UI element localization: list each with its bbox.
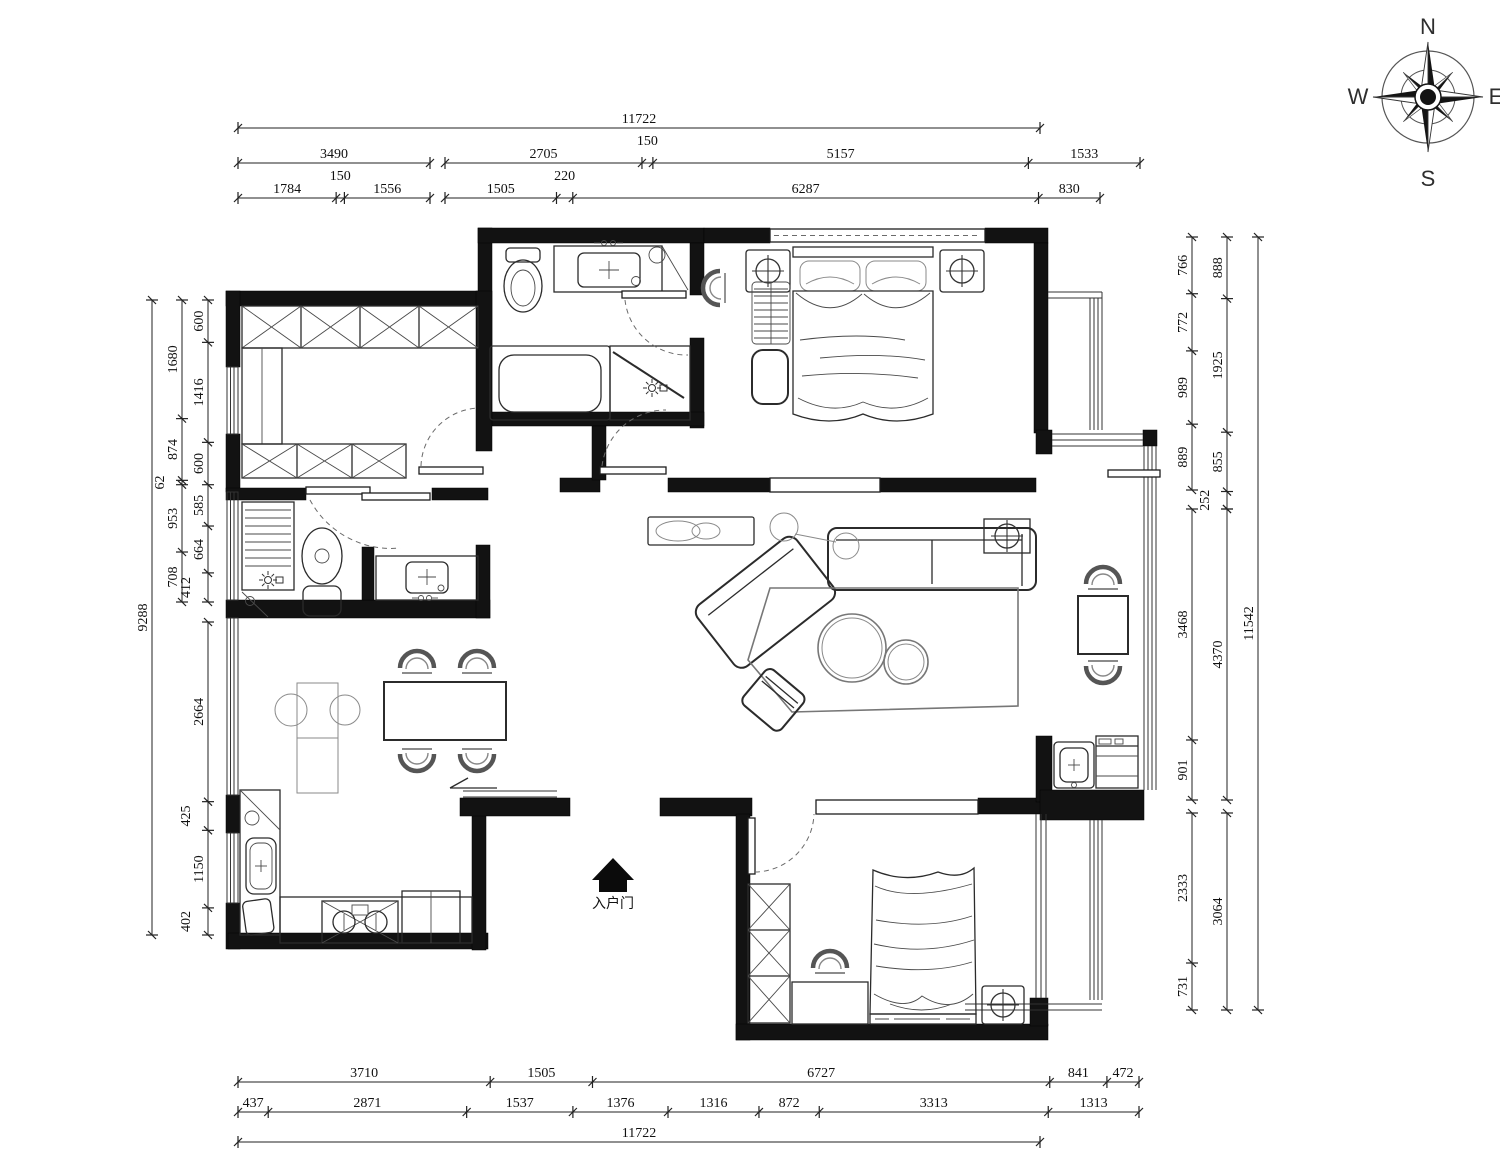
vanity-master [554, 241, 688, 293]
dimension-label: 220 [554, 169, 575, 184]
dimension-label: 3490 [320, 147, 348, 162]
dimension-label: 402 [179, 911, 194, 932]
dimension-label: 1505 [527, 1066, 555, 1081]
dimension-label: 841 [1068, 1066, 1089, 1081]
window-left-4 [227, 833, 238, 903]
compass-east-label: E [1489, 84, 1500, 109]
bay-window-bedroom2 [965, 820, 1102, 1010]
dimension-label: 2333 [1176, 874, 1191, 902]
bay-window-master [1048, 292, 1102, 430]
dimension-label: 62 [153, 476, 168, 490]
bathtub [490, 346, 610, 420]
bed-second [870, 868, 976, 1024]
dimension-label: 989 [1176, 377, 1191, 398]
master-bathroom [490, 241, 690, 421]
laundry-sink [1054, 742, 1094, 788]
sunroom-glazing [1144, 446, 1156, 790]
balcony-door [1108, 470, 1160, 477]
living-room [648, 513, 1036, 734]
balcony-chair [1086, 661, 1120, 683]
dimension-label: 1680 [166, 345, 181, 373]
dimension-label: 855 [1211, 451, 1226, 472]
balcony-chair [1086, 567, 1120, 589]
doors [306, 291, 1160, 874]
dining-table [384, 682, 506, 740]
island-counter [275, 683, 360, 793]
cloakroom [242, 306, 478, 478]
compass-north-label: N [1420, 14, 1436, 39]
window-master-north [770, 229, 985, 242]
dimension-label: 252 [1198, 490, 1213, 511]
window-left-2 [227, 492, 238, 600]
sunroom [1054, 567, 1138, 788]
entry-arrow-icon [592, 858, 634, 892]
rug [748, 588, 1018, 712]
dimension-label: 3468 [1176, 610, 1191, 638]
dimension-label: 11542 [1242, 606, 1257, 640]
armchair [739, 666, 807, 733]
dimension-label: 425 [179, 805, 194, 826]
dimension-label: 437 [243, 1096, 264, 1111]
corner-unit [242, 898, 274, 936]
nightstand-right [940, 250, 984, 292]
compass-rose: N S W E [1348, 14, 1500, 191]
dimension-label: 1150 [192, 855, 207, 882]
bed-master [793, 247, 933, 421]
entry-door-label: 入户门 [592, 895, 634, 911]
dining-chair [400, 749, 434, 771]
dimension-label: 874 [166, 439, 181, 460]
vanity-2 [376, 556, 478, 601]
dining-chair [460, 749, 494, 771]
dimension-label: 150 [330, 169, 351, 184]
dining-chair [460, 651, 494, 673]
dimension-label: 150 [637, 134, 658, 149]
dimension-label: 1376 [606, 1096, 634, 1111]
dimension-label: 953 [166, 508, 181, 529]
wardrobe-low-row [242, 444, 406, 478]
dining-area [275, 651, 506, 793]
nightstand-bedroom2 [982, 986, 1024, 1024]
cloak-cabinet [242, 348, 282, 444]
dimension-label: 9288 [136, 604, 151, 632]
coffee-table-large [818, 614, 886, 682]
dimension-label: 1537 [506, 1096, 534, 1111]
kitchen [240, 790, 472, 943]
window-entry [463, 791, 557, 797]
dimension-label: 6287 [792, 182, 820, 197]
dimension-label: 600 [192, 311, 207, 332]
dimension-label: 2664 [192, 698, 207, 726]
dimension-label: 664 [192, 539, 207, 560]
sideboard [648, 517, 754, 545]
floor-plan-drawing: 入户门 N S W E 1172234902705150515715331784… [0, 0, 1500, 1166]
kitchen-sink [246, 838, 276, 894]
entry-marker: 入户门 [592, 858, 634, 911]
cloakroom-door [419, 408, 483, 474]
compass-west-label: W [1348, 84, 1369, 109]
window-left-3 [227, 618, 238, 795]
dimension-label: 1925 [1211, 351, 1226, 379]
dimension-label: 3313 [920, 1096, 948, 1111]
dimension-label: 6727 [807, 1066, 835, 1081]
dimension-label: 888 [1211, 257, 1226, 278]
desk-chair [813, 951, 847, 973]
dimension-label: 412 [179, 577, 194, 598]
dimension-label: 830 [1059, 182, 1080, 197]
dimension-label: 472 [1112, 1066, 1133, 1081]
bedroom2-north-wall-band [816, 800, 978, 814]
wardrobe-bedroom2 [748, 884, 790, 1023]
side-table [984, 519, 1030, 553]
master-south-window-band [770, 478, 880, 492]
toilet-master [504, 248, 542, 312]
dimension-label: 901 [1176, 759, 1191, 780]
washing-machine [1096, 736, 1138, 788]
dimension-label: 600 [192, 453, 207, 474]
dimension-label: 11722 [622, 112, 656, 127]
dimension-label: 2705 [529, 147, 557, 162]
dimension-label: 5157 [827, 147, 855, 162]
dimension-label: 1505 [487, 182, 515, 197]
window-bedroom2-east [1036, 814, 1046, 998]
dimension-label: 889 [1176, 447, 1191, 468]
bathroom2-door [306, 487, 430, 548]
dimension-label: 4370 [1211, 641, 1226, 669]
ottoman [752, 350, 788, 404]
dimension-label: 2871 [353, 1096, 381, 1111]
coffee-table-small [884, 640, 928, 684]
dimension-label: 1556 [373, 182, 401, 197]
dimension-label: 1313 [1080, 1096, 1108, 1111]
dimension-label: 11722 [622, 1126, 656, 1141]
desk [792, 982, 868, 1024]
dimension-label: 3710 [350, 1066, 378, 1081]
dimension-label: 3064 [1211, 898, 1226, 926]
dimension-label: 731 [1176, 976, 1191, 997]
bedroom-2 [748, 868, 1024, 1024]
dimension-label: 766 [1176, 255, 1191, 276]
sunroom-top-window [1052, 434, 1143, 446]
compass-south-label: S [1421, 166, 1436, 191]
dining-chair [400, 651, 434, 673]
bedroom2-door [748, 814, 814, 874]
dimension-label: 1533 [1070, 147, 1098, 162]
balcony-table [1078, 596, 1128, 654]
dimension-label: 872 [779, 1096, 800, 1111]
dimension-label: 1316 [699, 1096, 727, 1111]
shower-master [610, 346, 690, 420]
nightstand-left [746, 250, 790, 292]
chair-master [703, 271, 725, 305]
master-bedroom [703, 247, 984, 421]
dimension-label: 1784 [273, 182, 301, 197]
dimension-label: 1416 [192, 378, 207, 406]
entry-opening-mark [450, 778, 497, 788]
window-left-1 [227, 367, 238, 434]
wardrobe-top-row [242, 306, 478, 348]
drying-rack [752, 282, 790, 344]
dimension-label: 772 [1176, 312, 1191, 333]
dimension-label: 585 [192, 495, 207, 516]
floor-plan-page: 入户门 N S W E 1172234902705150515715331784… [0, 0, 1500, 1166]
